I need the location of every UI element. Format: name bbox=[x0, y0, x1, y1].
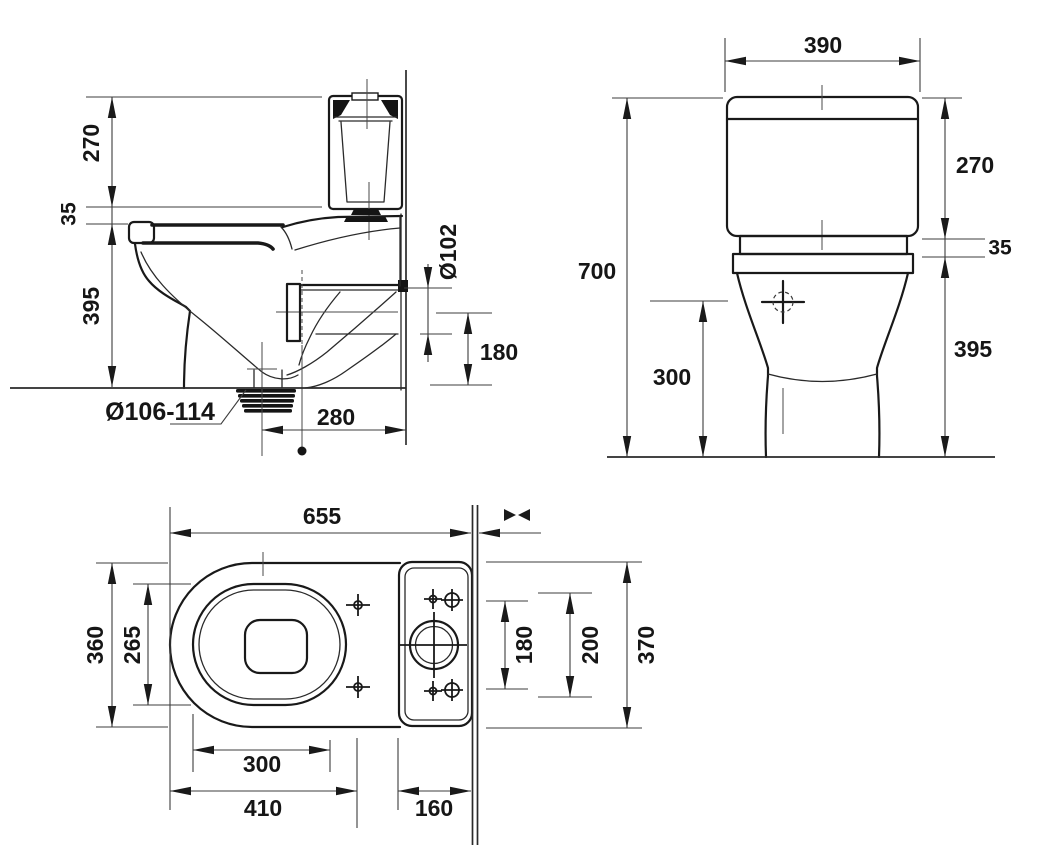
dim-label-side-outlet-to-wall: 280 bbox=[317, 404, 355, 430]
arrowhead bbox=[941, 218, 949, 239]
arrowhead bbox=[108, 366, 116, 387]
side-tank-inner-walls bbox=[341, 122, 390, 202]
plan-gap-arrow-left bbox=[518, 509, 530, 521]
front-coupling-band-lower bbox=[733, 254, 913, 273]
side-rim-inner-line bbox=[295, 228, 400, 250]
front-pedestal-right bbox=[877, 273, 908, 457]
arrowhead bbox=[479, 529, 500, 537]
arrowhead bbox=[398, 787, 419, 795]
dim-label-side-cistern-height: 270 bbox=[78, 124, 104, 162]
arrowhead bbox=[699, 301, 707, 322]
plan-view: 655 360 265 300 410 bbox=[82, 503, 659, 845]
arrowhead bbox=[623, 562, 631, 583]
plan-depth-lines bbox=[170, 507, 471, 810]
dim-label-plan-holes-spacing: 180 bbox=[511, 626, 537, 664]
arrowhead bbox=[464, 313, 472, 334]
dim-label-plan-outer-holes-spacing: 200 bbox=[577, 626, 603, 664]
front-dimensions: 390 700 300 270 35 395 bbox=[578, 32, 1012, 457]
arrowhead bbox=[108, 563, 116, 584]
front-pedestal-left bbox=[737, 273, 768, 457]
dim-label-plan-cistern-depth: 160 bbox=[415, 795, 453, 821]
toilet-dimension-drawing: 270 35 395 Ø102 180 280 Ø106-114 bbox=[0, 0, 1040, 850]
arrowhead bbox=[193, 746, 214, 754]
arrowhead bbox=[424, 267, 432, 288]
side-outlet-ribs bbox=[236, 389, 296, 413]
dim-label-plan-bowl-length: 410 bbox=[244, 795, 282, 821]
dim-label-front-cistern-height: 270 bbox=[956, 152, 994, 178]
dim-label-plan-overall-depth: 655 bbox=[303, 503, 342, 529]
side-lid-corner-left bbox=[333, 100, 350, 119]
arrowhead bbox=[262, 426, 283, 434]
dim-label-front-bowl-height: 395 bbox=[954, 336, 993, 362]
arrowhead bbox=[464, 364, 472, 385]
plan-tank-hole-top-right bbox=[441, 589, 463, 611]
dim-label-front-inlet-height: 300 bbox=[653, 364, 691, 390]
plan-tank-hole-top-left bbox=[424, 589, 442, 609]
plan-bowl-opening bbox=[245, 620, 307, 673]
arrowhead bbox=[623, 436, 631, 457]
plan-bowl-outline bbox=[170, 563, 400, 727]
side-seat-hinge bbox=[281, 227, 292, 249]
front-cistern-outline bbox=[727, 97, 918, 236]
arrowhead bbox=[566, 676, 574, 697]
plan-gap-arrow-right bbox=[504, 509, 516, 521]
front-total-height-lines bbox=[612, 98, 723, 457]
arrowhead bbox=[424, 334, 432, 355]
dim-label-plan-opening-length: 300 bbox=[243, 751, 281, 777]
side-view: 270 35 395 Ø102 180 280 Ø106-114 bbox=[10, 70, 518, 456]
arrowhead bbox=[941, 98, 949, 119]
arrowhead bbox=[941, 436, 949, 457]
plan-seat-bolt-hole-bottom bbox=[346, 676, 370, 698]
dim-label-plan-cistern-width: 370 bbox=[633, 626, 659, 664]
side-trap-curve-3 bbox=[299, 292, 340, 365]
plan-flush-hole-cross bbox=[400, 612, 467, 678]
dim-label-front-coupling-gap: 35 bbox=[988, 237, 1012, 260]
side-reference-dot bbox=[298, 447, 307, 456]
dim-label-plan-seat-width: 265 bbox=[119, 626, 145, 665]
dim-label-side-pipe-diameter: Ø102 bbox=[435, 224, 461, 280]
dim-label-front-cistern-width: 390 bbox=[804, 32, 842, 58]
dim-label-side-seat-gap: 35 bbox=[58, 202, 81, 226]
arrowhead bbox=[108, 224, 116, 245]
arrowhead bbox=[144, 684, 152, 705]
plan-dimensions: 655 360 265 300 410 bbox=[82, 503, 659, 828]
arrowhead bbox=[623, 98, 631, 119]
dim-label-plan-bowl-width: 360 bbox=[82, 626, 108, 664]
plan-wall-lines bbox=[473, 505, 478, 845]
technical-drawing-canvas: 270 35 395 Ø102 180 280 Ø106-114 bbox=[0, 0, 1040, 850]
arrowhead bbox=[170, 787, 191, 795]
arrowhead bbox=[385, 426, 406, 434]
side-trap-curve-2 bbox=[305, 334, 396, 388]
dim-label-front-overall-height: 700 bbox=[578, 258, 616, 284]
arrowhead bbox=[725, 57, 746, 65]
plan-tank-hole-bottom-left bbox=[424, 681, 442, 701]
side-seat-underside bbox=[143, 243, 273, 249]
plan-cistern-width-lines bbox=[486, 562, 642, 728]
plan-tank-hole-bottom-right bbox=[441, 679, 463, 701]
dim-label-side-pipe-height: 180 bbox=[480, 339, 518, 365]
arrowhead bbox=[501, 668, 509, 689]
arrowhead bbox=[170, 529, 191, 537]
side-bowl-interior bbox=[141, 252, 298, 379]
arrowhead bbox=[699, 436, 707, 457]
arrowhead bbox=[336, 787, 357, 795]
plan-seat-bolt-hole-top bbox=[346, 594, 370, 616]
side-lid-inner-lines bbox=[334, 117, 397, 121]
arrowhead bbox=[108, 97, 116, 118]
arrowhead bbox=[144, 584, 152, 605]
arrowhead bbox=[623, 707, 631, 728]
plan-cistern bbox=[399, 562, 472, 726]
plan-bowl bbox=[170, 552, 400, 727]
front-inlet-cross bbox=[762, 281, 804, 323]
front-bowl bbox=[737, 273, 908, 457]
arrowhead bbox=[309, 746, 330, 754]
dim-label-side-outlet-diameter: Ø106-114 bbox=[105, 398, 215, 426]
side-lid-corner-right bbox=[381, 100, 398, 119]
front-view: 390 700 300 270 35 395 bbox=[578, 32, 1012, 457]
plan-seat-ring-inner bbox=[199, 590, 340, 699]
arrowhead bbox=[450, 787, 471, 795]
side-dimensions: 270 35 395 Ø102 180 280 Ø106-114 bbox=[58, 97, 519, 445]
front-coupling-band-upper bbox=[740, 236, 907, 254]
front-cistern bbox=[727, 85, 918, 273]
front-pedestal-curve bbox=[768, 374, 877, 382]
arrowhead bbox=[501, 601, 509, 622]
side-bowl-front-exterior bbox=[135, 244, 190, 388]
side-coupling-gasket-upper bbox=[351, 209, 381, 215]
dim-label-side-bowl-height: 395 bbox=[78, 287, 104, 326]
arrowhead bbox=[108, 186, 116, 207]
arrowhead bbox=[566, 593, 574, 614]
side-cistern-lid-notch bbox=[352, 93, 378, 100]
arrowhead bbox=[450, 529, 471, 537]
plan-seat-ring-outer bbox=[193, 584, 346, 705]
arrowhead bbox=[941, 257, 949, 278]
arrowhead bbox=[899, 57, 920, 65]
arrowhead bbox=[108, 706, 116, 727]
